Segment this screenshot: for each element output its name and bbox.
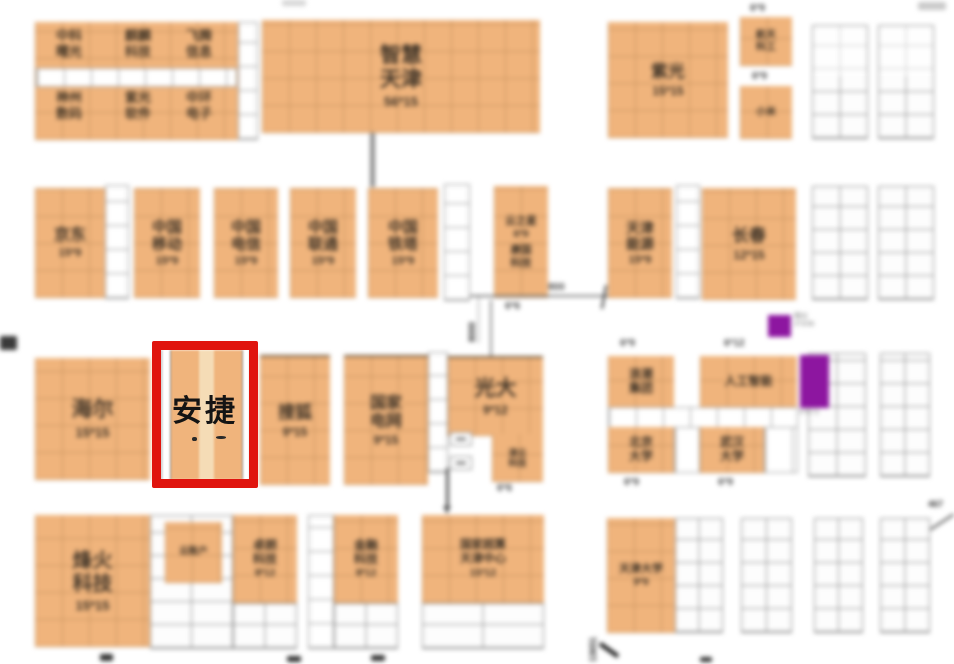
booth-dim: 9*9: [633, 577, 648, 588]
dim-label: 6*9: [624, 477, 639, 488]
aisle-band: [674, 427, 700, 473]
tag-dash: [456, 462, 466, 464]
booth-name: 人工智能: [724, 375, 772, 389]
booth-name: 金融 科技: [354, 539, 378, 567]
booth-yidong: 中国 移动 15*9: [134, 188, 200, 298]
booth-hangtian: 航天 科工: [740, 17, 792, 66]
booth-dim: 9*12: [356, 568, 377, 579]
booth-name: 北京 大学: [629, 436, 653, 464]
booth-haier: 海尔 15*15: [35, 358, 150, 480]
booth-yunzhanghu: 云账户: [165, 522, 222, 583]
booth-name: 航天 科工: [756, 30, 776, 53]
dim-label: 6*9: [620, 338, 635, 349]
booth-name: 中国 铁塔: [388, 219, 418, 254]
booth-label-ziguang-soft: 紫光 软件: [112, 90, 164, 121]
booth-dim: 9*15: [283, 425, 308, 439]
booth-dim: 15*9: [59, 247, 82, 259]
empty-grid: [675, 518, 723, 633]
booth-tieta: 中国 铁塔 15*9: [368, 188, 438, 298]
booth-tianda: 天津大学 9*9: [607, 518, 675, 633]
dim-label: 6*6: [497, 483, 512, 494]
booth-zhihui-tianjin: 智慧 天津 56*15: [262, 20, 540, 133]
highlight-red-frame: [152, 341, 258, 488]
ladder-strip: [308, 515, 334, 649]
booth-rengongzhineng: 人工智能: [700, 356, 797, 408]
booth-name: 武汉 大学: [720, 436, 744, 464]
booth-ziguang: 紫光 15*15: [608, 22, 728, 138]
small-tag: [450, 456, 472, 470]
booth-label-zhonghuan: 中环 电子: [174, 90, 224, 121]
dim-label: 6*12: [724, 338, 745, 349]
booth-jinrong: 金融 科技 9*12: [334, 515, 398, 603]
edge-mark: [700, 657, 712, 662]
booth-dim: 15*15: [76, 598, 110, 613]
booth-name: 海尔: [72, 398, 114, 422]
booth-name: 天津 能源: [626, 220, 654, 252]
exhibition-floorplan: 中科 曙光 麒麟 科技 飞腾 信息 神州 数码 紫光 软件 中环 电子 智慧 天…: [0, 0, 954, 664]
booth-name: 云之星: [505, 215, 537, 227]
booth-name: 光大: [475, 377, 517, 401]
booth-dim: 15*9: [156, 255, 179, 267]
booth-dianxin: 中国 电信 15*9: [214, 188, 278, 298]
empty-grid: [880, 353, 930, 477]
dim-line-vertical: [490, 300, 492, 357]
booth-name: 云账户: [179, 547, 208, 558]
booth-name: 中国 移动: [152, 219, 182, 254]
dim-label: 6*9: [750, 3, 765, 14]
booth-liantong: 中国 联通 15*9: [290, 188, 356, 298]
grid-fade: [813, 26, 867, 76]
booth-name: 中国 联通: [308, 219, 338, 254]
booth-guangda-sub: 津云 科技: [492, 434, 543, 482]
booth-label-sugon: 中科 曙光: [44, 28, 94, 59]
purple-note-small: 精仪 3*3/36: [794, 313, 846, 330]
booth-name: 浪潮 集团: [629, 368, 653, 396]
booth-dim: 15*9: [392, 255, 415, 267]
booth-name: 国家 电网: [370, 395, 402, 432]
arrow-line-467: [930, 514, 954, 531]
booth-beida: 北京 大学: [608, 427, 674, 473]
ladder-strip: [428, 352, 448, 473]
booth-fenghuo: 烽火 科技 15*15: [35, 515, 150, 647]
dim-label: 6*9: [752, 71, 767, 82]
aisle-band: [36, 68, 237, 87]
booth-dim: 56*15: [384, 94, 418, 109]
booth-name: 中国 电信: [231, 219, 261, 254]
booth-changchun: 长春 12*15: [702, 188, 796, 300]
edge-mark: [0, 336, 17, 350]
booth-label-qilin: 麒麟 科技: [112, 28, 164, 59]
booth-zhuolang: 卓朗 科技 9*12: [233, 515, 297, 603]
booth-guojia-dianwang: 国家 电网 9*15: [344, 355, 428, 485]
booth-name: 卓朗 科技: [253, 539, 277, 567]
purple-booth-small: [768, 315, 791, 337]
empty-grid: [880, 518, 930, 633]
dim-line-horizontal: [470, 295, 608, 297]
purple-booth-tall: [800, 355, 829, 408]
edge-mark: [282, 0, 306, 6]
floorplan-blurred-layer: 中科 曙光 麒麟 科技 飞腾 信息 神州 数码 紫光 软件 中环 电子 智慧 天…: [0, 0, 954, 664]
booth-name: 紫光: [651, 62, 685, 82]
booth-zhixing: 云之星 6*9 康国 科技: [494, 186, 548, 298]
booth-label-shuma: 神州 数码: [44, 90, 94, 121]
booth-dim: 15*9: [235, 255, 258, 267]
tag-dash: [456, 438, 466, 440]
note-467: 467: [928, 499, 943, 509]
booth-label-feiteng: 飞腾 信息: [174, 28, 224, 59]
booth-xiaomi: 小米: [740, 86, 792, 139]
ladder-strip: [676, 185, 700, 299]
booth-langchao: 浪潮 集团: [608, 356, 674, 408]
empty-grid: [812, 25, 868, 139]
arrow-mark: [599, 642, 619, 658]
booth-chaosuan: 国家超算 天津中心 15*12: [422, 515, 544, 603]
empty-grid: [334, 603, 398, 649]
booth-dim: 15*9: [629, 254, 652, 266]
booth-guangda: 光大 9*12: [448, 356, 543, 436]
booth-tianjin-nengyuan: 天津 能源 15*9: [608, 188, 672, 298]
empty-grid: [741, 518, 792, 633]
booth-dim: 15*15: [652, 84, 683, 98]
edge-mark: [371, 655, 385, 661]
booth-name: 烽火 科技: [73, 550, 113, 596]
booth-jingdong: 京东 15*9: [35, 188, 105, 298]
booth-name2: 康国 科技: [511, 244, 532, 268]
dim-8000-label: 8000: [467, 322, 477, 342]
ladder-strip: [444, 184, 470, 301]
empty-grid: [233, 603, 297, 649]
booth-dim: 15*12: [470, 568, 496, 579]
booth-dim: 9*15: [374, 433, 399, 447]
booth-wuda: 武汉 大学: [700, 427, 764, 473]
booth-dim: 9*12: [483, 403, 508, 417]
empty-grid: [878, 186, 934, 300]
dim-arrowhead: [443, 506, 451, 514]
edge-mark: [100, 654, 113, 661]
booth-name: 京东: [54, 227, 86, 245]
booth-dim: 15*15: [76, 425, 110, 440]
ladder-strip: [105, 185, 129, 299]
edge-mark: [287, 656, 301, 662]
small-tag: [450, 432, 472, 446]
dim-line-vertical: [478, 297, 479, 343]
booth-name: 智慧 天津: [380, 44, 422, 92]
booth-sohu: 搜狐 9*15: [260, 355, 330, 485]
aisle-band: [764, 427, 798, 473]
aisle-band: [608, 407, 798, 428]
booth-dim: 15*9: [312, 255, 335, 267]
edge-mark: [918, 2, 946, 10]
grid-fade: [879, 26, 933, 76]
empty-grid: [814, 518, 863, 633]
booth-dim: 12*15: [733, 248, 764, 262]
empty-grid: [812, 186, 868, 300]
ladder-strip: [238, 22, 258, 140]
booth-name: 天津大学: [619, 563, 663, 576]
booth-dim: 6*9: [513, 229, 528, 240]
booth-name: 长春: [732, 226, 766, 246]
empty-grid: [878, 25, 934, 139]
booth-name: 搜狐: [278, 403, 312, 423]
empty-grid: [422, 603, 544, 649]
booth-name: 津云 科技: [508, 448, 526, 469]
purple-note-tall: 3*6/72: [799, 409, 839, 417]
dim-label: 6*9: [718, 477, 733, 488]
booth-name: 小米: [756, 107, 776, 119]
note-13651: 13651: [588, 637, 598, 662]
connector-line: [370, 133, 375, 187]
booth-name: 国家超算 天津中心: [460, 539, 506, 565]
booth-dim: 9*12: [255, 568, 276, 579]
dim-800-label: 800: [548, 282, 565, 293]
dim-tick: [601, 285, 607, 309]
dim-label: 6*6: [505, 301, 520, 312]
dim-arrow-line: [446, 468, 449, 510]
